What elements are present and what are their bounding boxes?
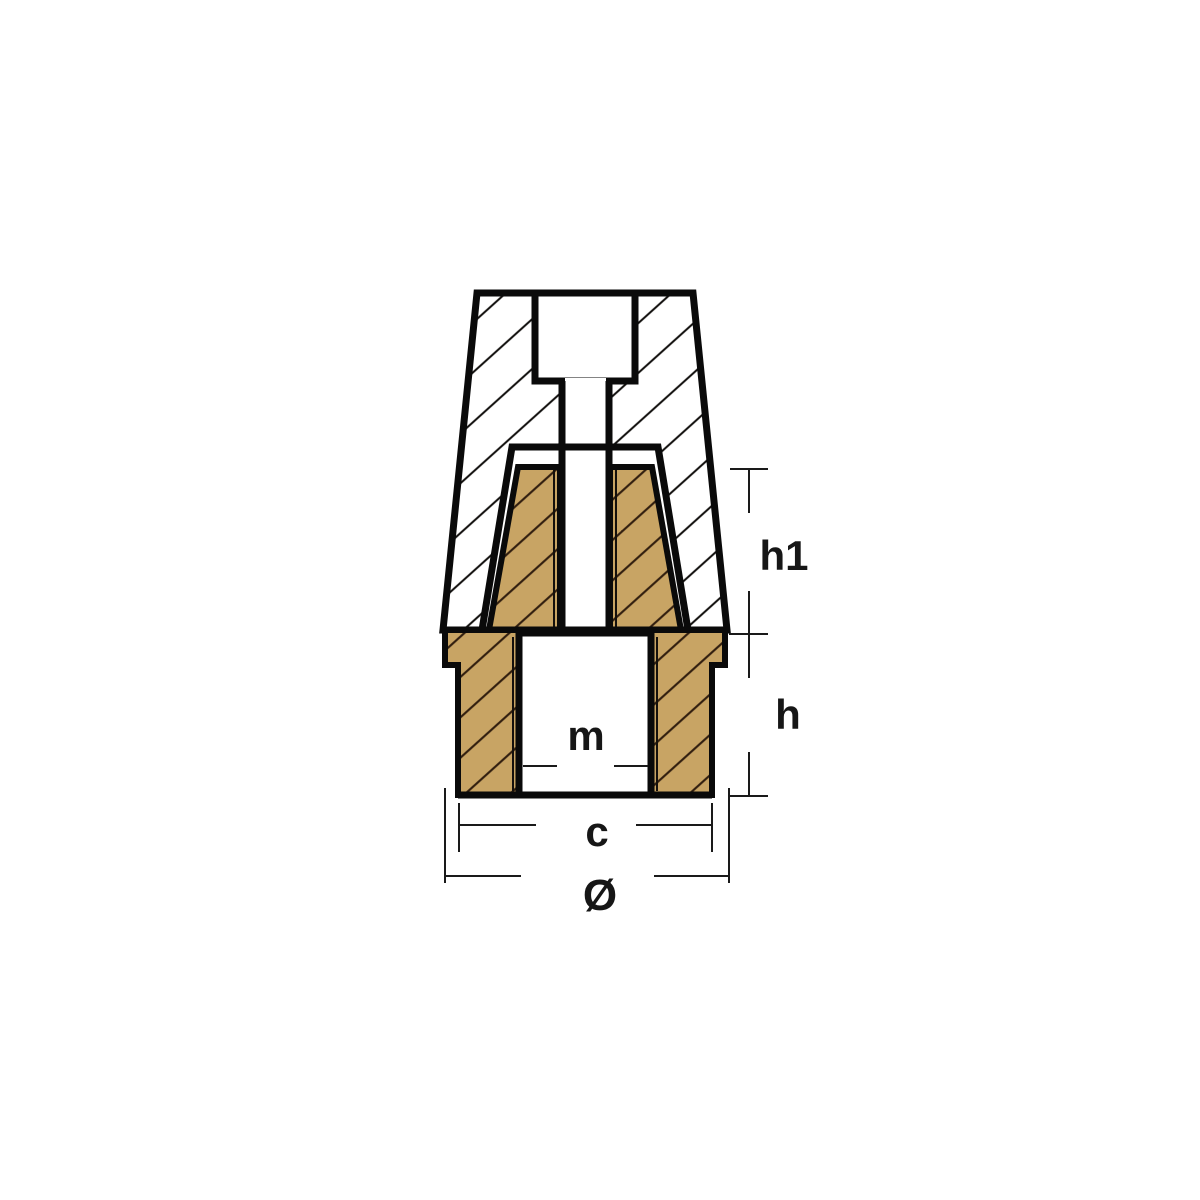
top-slot bbox=[535, 293, 635, 381]
label-h1: h1 bbox=[759, 532, 808, 579]
label-h: h bbox=[775, 691, 801, 738]
label-m: m bbox=[567, 712, 604, 759]
stem-gap bbox=[565, 378, 606, 452]
diagram-canvas: h1 h m c Ø bbox=[0, 0, 1200, 1200]
propeller-nut-anode-diagram: h1 h m c Ø bbox=[0, 0, 1200, 1200]
dimension-h bbox=[730, 634, 768, 796]
label-diameter: Ø bbox=[583, 871, 617, 920]
label-c: c bbox=[585, 808, 608, 855]
